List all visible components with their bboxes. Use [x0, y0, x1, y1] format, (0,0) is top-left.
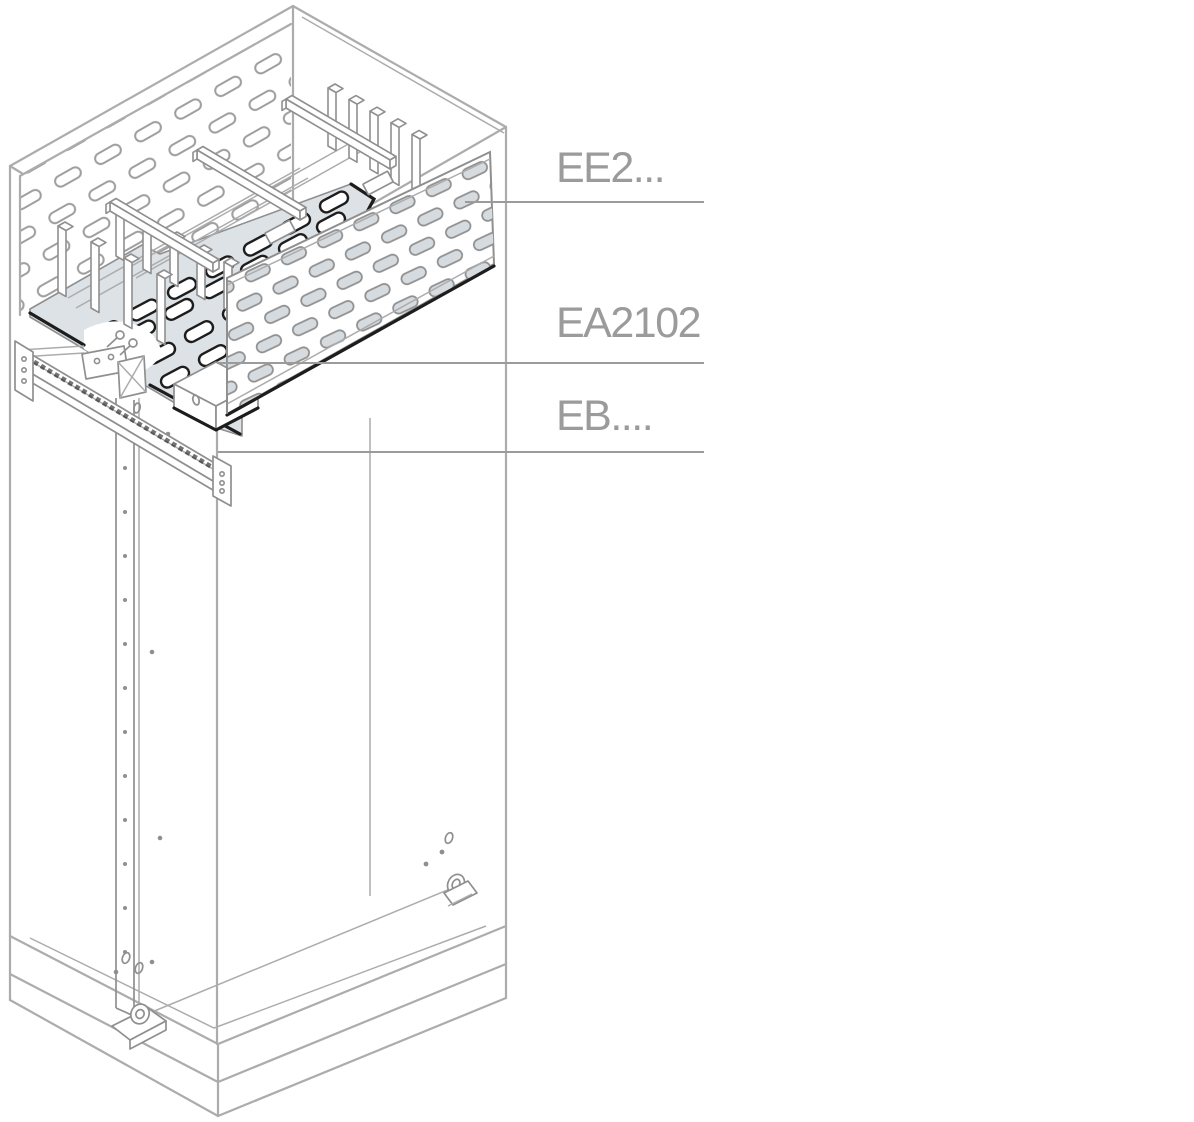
fixing-bracket-right: [424, 832, 477, 906]
label-ea2102: EA2102: [556, 302, 700, 345]
label-eb: EB....: [556, 395, 652, 438]
wall-holes: [150, 432, 171, 841]
technical-drawing-page: EE2... EA2102 EB....: [0, 0, 1194, 1122]
rail-block: [363, 171, 393, 195]
vertical-upright: [112, 398, 166, 1049]
label-ee2: EE2...: [556, 147, 664, 190]
upright-top-bracket: [118, 356, 146, 398]
